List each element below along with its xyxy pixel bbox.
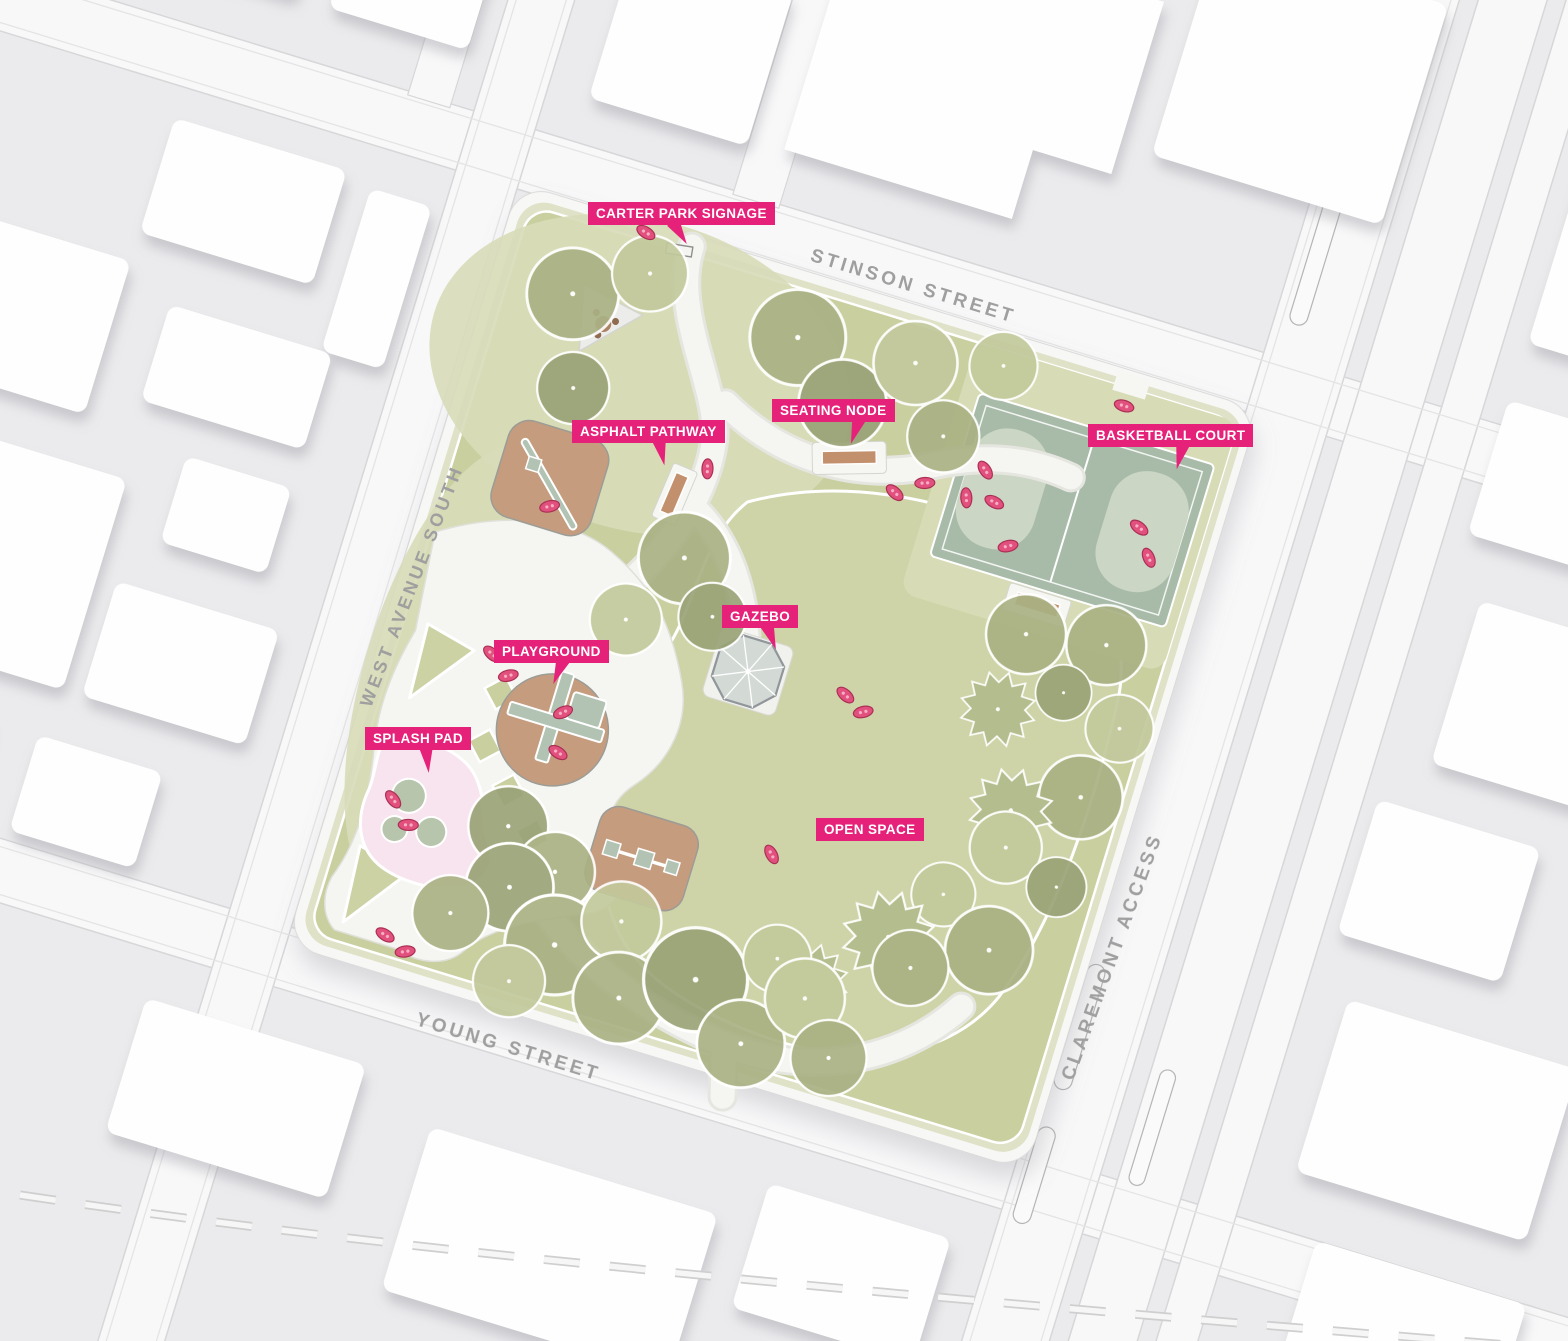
label-carter-park-signage: CARTER PARK SIGNAGE [588,202,775,225]
label-text: SEATING NODE [780,403,887,418]
label-text: BASKETBALL COURT [1096,428,1245,443]
play-structure [526,456,542,472]
label-text: OPEN SPACE [824,822,916,837]
bench-icon [822,450,876,464]
label-basketball-court: BASKETBALL COURT [1088,424,1253,447]
label-text: PLAYGROUND [502,644,601,659]
label-text: GAZEBO [730,609,790,624]
label-splash-pad: SPLASH PAD [365,727,471,750]
person-marker-icon [398,819,418,831]
label-text: ASPHALT PATHWAY [580,424,717,439]
swing-set [602,840,621,859]
label-asphalt-pathway: ASPHALT PATHWAY [572,420,725,443]
label-pointer [419,746,436,773]
label-text: CARTER PARK SIGNAGE [596,206,767,221]
person-marker-icon [702,459,714,479]
park-site-plan: CARTER PARK SIGNAGE ASPHALT PATHWAY SEAT… [0,0,1568,1341]
swing-set [664,859,680,875]
label-playground: PLAYGROUND [494,640,609,663]
label-gazebo: GAZEBO [722,605,798,628]
label-seating-node: SEATING NODE [772,399,895,422]
person-marker-icon [960,488,972,509]
person-marker-icon [915,477,936,489]
label-open-space: OPEN SPACE [816,818,924,841]
label-text: SPLASH PAD [373,731,463,746]
site-plan-drawing [0,0,1568,1341]
